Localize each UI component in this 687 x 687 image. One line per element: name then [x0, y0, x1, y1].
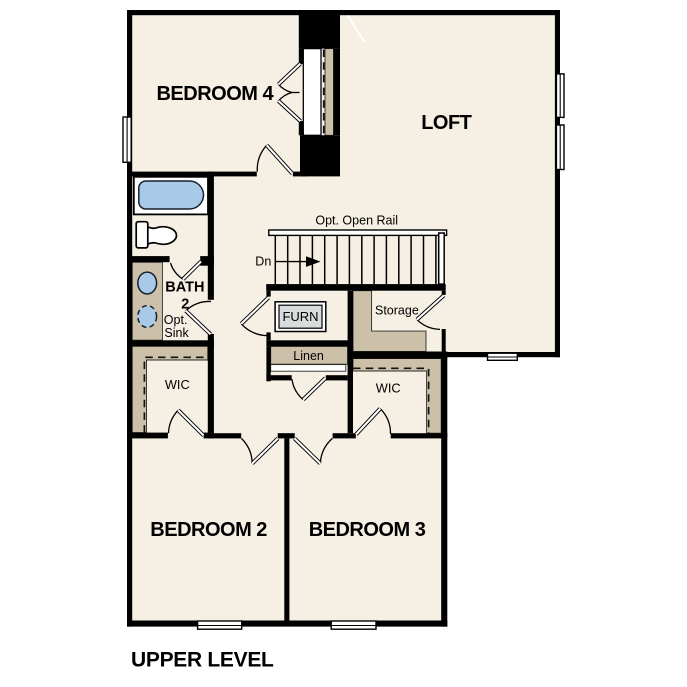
- svg-text:BEDROOM 3: BEDROOM 3: [309, 519, 426, 541]
- svg-text:WIC: WIC: [165, 377, 190, 392]
- svg-text:BATH: BATH: [165, 280, 204, 296]
- svg-text:BEDROOM 4: BEDROOM 4: [156, 83, 274, 105]
- svg-text:Opt.: Opt.: [164, 313, 188, 327]
- svg-text:LOFT: LOFT: [421, 112, 471, 134]
- svg-text:Storage: Storage: [375, 303, 419, 317]
- svg-text:Opt. Open Rail: Opt. Open Rail: [315, 214, 398, 228]
- svg-text:WIC: WIC: [376, 381, 401, 396]
- svg-text:Sink: Sink: [164, 326, 189, 340]
- svg-text:Linen: Linen: [293, 349, 324, 363]
- svg-text:UPPER LEVEL: UPPER LEVEL: [131, 648, 274, 671]
- svg-text:BEDROOM 2: BEDROOM 2: [150, 519, 267, 541]
- svg-text:FURN: FURN: [282, 309, 318, 324]
- svg-text:Dn: Dn: [255, 255, 271, 269]
- svg-text:2: 2: [181, 296, 189, 312]
